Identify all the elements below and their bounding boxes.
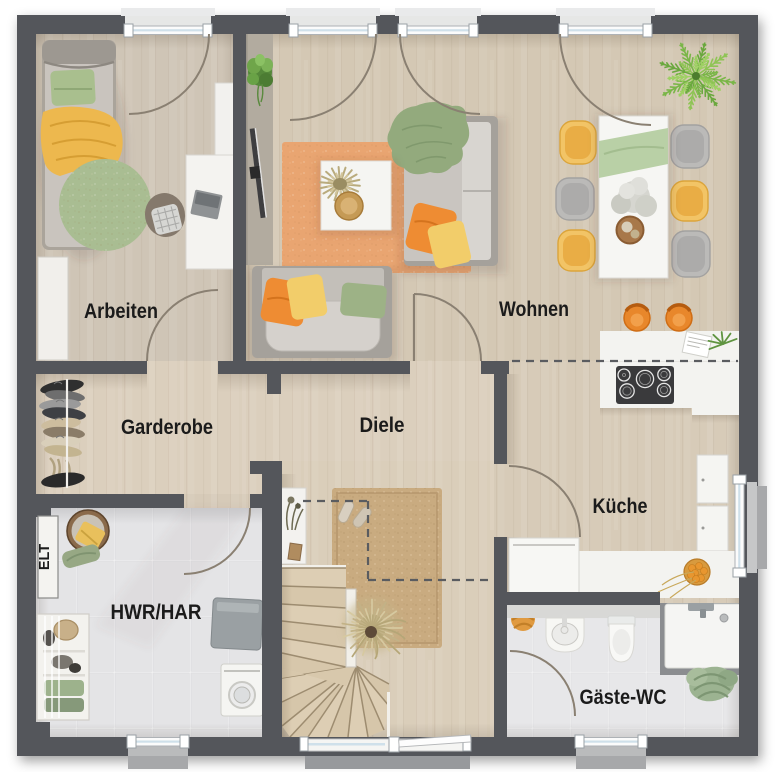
svg-text:Küche: Küche — [593, 495, 648, 518]
svg-text:HWR/HAR: HWR/HAR — [111, 601, 202, 624]
svg-text:Gäste-WC: Gäste-WC — [580, 686, 667, 709]
svg-text:Arbeiten: Arbeiten — [84, 300, 158, 323]
svg-text:Garderobe: Garderobe — [121, 416, 213, 439]
svg-text:ELT: ELT — [37, 544, 53, 570]
svg-text:Diele: Diele — [360, 414, 405, 437]
svg-text:Wohnen: Wohnen — [499, 298, 569, 321]
